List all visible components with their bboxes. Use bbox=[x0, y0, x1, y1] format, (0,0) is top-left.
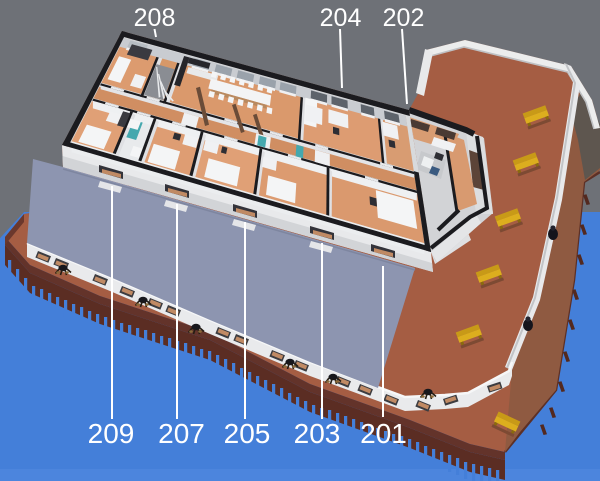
svg-text:202: 202 bbox=[383, 4, 425, 32]
svg-text:204: 204 bbox=[320, 4, 362, 32]
svg-text:208: 208 bbox=[134, 4, 176, 32]
svg-text:207: 207 bbox=[158, 418, 205, 449]
svg-text:209: 209 bbox=[88, 418, 135, 449]
svg-text:203: 203 bbox=[294, 418, 341, 449]
svg-text:201: 201 bbox=[360, 418, 407, 449]
svg-text:205: 205 bbox=[224, 418, 271, 449]
